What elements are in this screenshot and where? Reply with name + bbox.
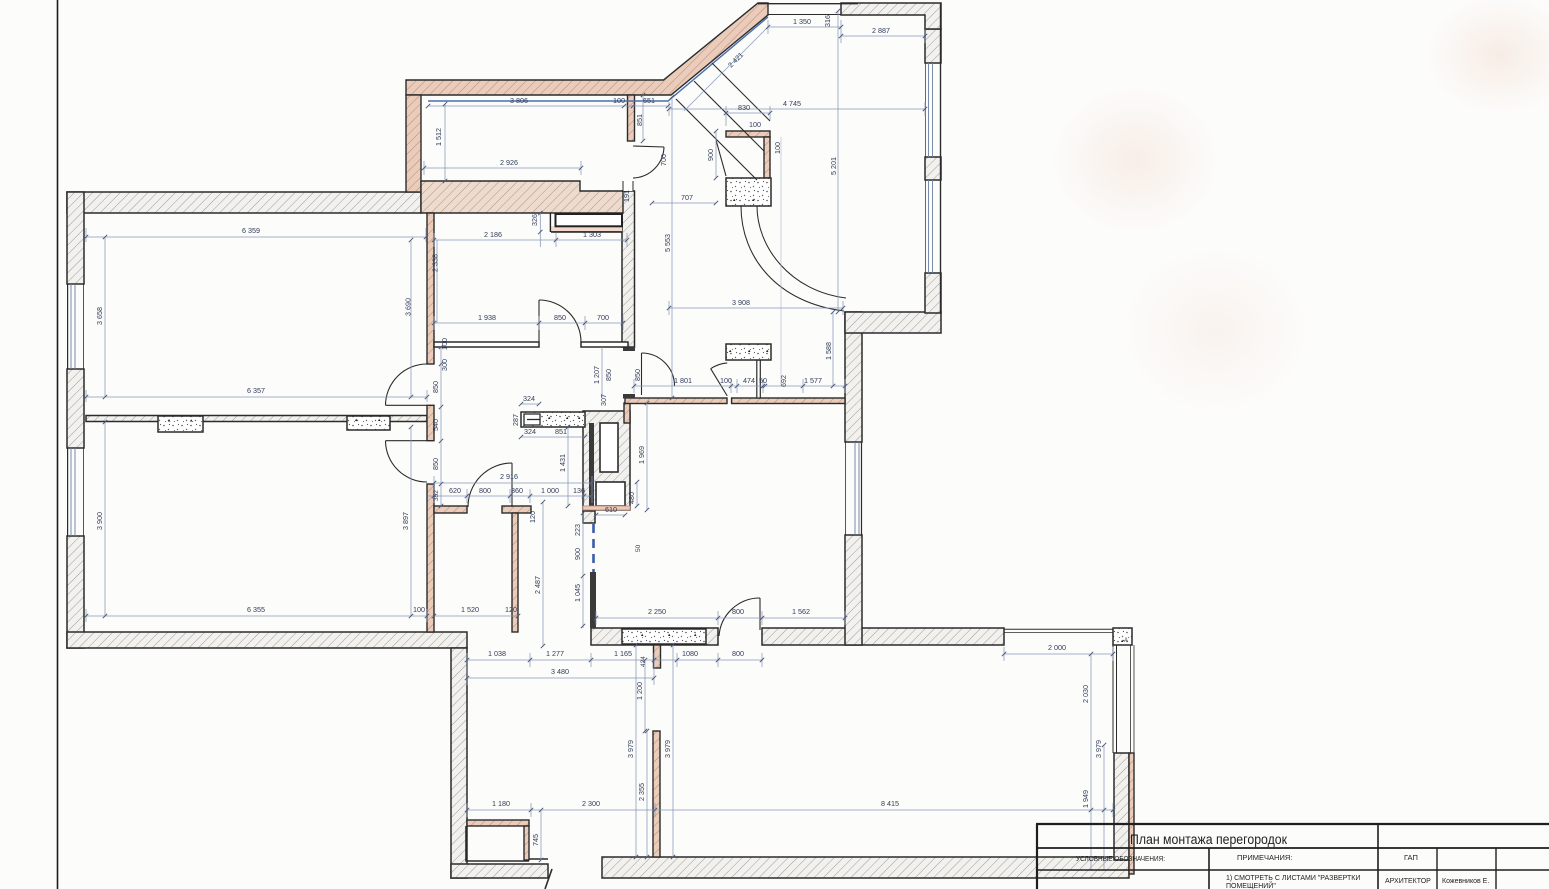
- svg-text:316: 316: [823, 15, 832, 27]
- svg-text:1 938: 1 938: [478, 313, 496, 322]
- svg-text:2 300: 2 300: [582, 799, 600, 808]
- svg-text:800: 800: [479, 486, 491, 495]
- svg-text:800: 800: [732, 607, 744, 616]
- svg-text:АРХИТЕКТОР: АРХИТЕКТОР: [1385, 878, 1431, 885]
- svg-text:850: 850: [604, 369, 613, 381]
- svg-text:УСЛОВНЫЕ ОБОЗНАЧЕНИЯ:: УСЛОВНЫЕ ОБОЗНАЧЕНИЯ:: [1076, 856, 1165, 863]
- svg-text:1 165: 1 165: [614, 649, 632, 658]
- svg-text:900: 900: [706, 149, 715, 161]
- svg-text:6 359: 6 359: [242, 226, 260, 235]
- svg-text:136: 136: [573, 486, 585, 495]
- svg-text:850: 850: [431, 381, 440, 393]
- svg-text:287: 287: [511, 414, 520, 426]
- svg-text:540: 540: [431, 419, 440, 431]
- svg-text:1 303: 1 303: [583, 230, 601, 239]
- svg-text:1 350: 1 350: [793, 17, 811, 26]
- svg-text:100: 100: [613, 96, 625, 105]
- svg-text:3 979: 3 979: [626, 740, 635, 758]
- svg-text:324: 324: [524, 427, 536, 436]
- svg-text:1 180: 1 180: [492, 799, 510, 808]
- svg-text:120: 120: [528, 511, 537, 523]
- svg-text:2 926: 2 926: [500, 158, 518, 167]
- svg-text:1 045: 1 045: [573, 584, 582, 602]
- svg-text:6 357: 6 357: [247, 386, 265, 395]
- svg-text:3 908: 3 908: [732, 298, 750, 307]
- svg-text:850: 850: [554, 313, 566, 322]
- svg-text:ПОМЕЩЕНИЙ": ПОМЕЩЕНИЙ": [1226, 881, 1276, 889]
- svg-text:830: 830: [738, 103, 750, 112]
- svg-text:3 806: 3 806: [510, 96, 528, 105]
- svg-text:100: 100: [413, 605, 425, 614]
- svg-text:4 745: 4 745: [783, 99, 801, 108]
- svg-text:План монтажа перегородок: План монтажа перегородок: [1130, 832, 1287, 847]
- svg-text:324: 324: [523, 394, 535, 403]
- svg-text:1 038: 1 038: [488, 649, 506, 658]
- svg-text:223: 223: [573, 524, 582, 536]
- svg-text:5 553: 5 553: [663, 234, 672, 252]
- svg-text:50: 50: [635, 544, 642, 552]
- svg-text:8 415: 8 415: [881, 799, 899, 808]
- svg-text:1080: 1080: [682, 649, 698, 658]
- svg-text:100: 100: [773, 142, 782, 154]
- svg-text:100: 100: [749, 120, 761, 129]
- svg-text:3 658: 3 658: [95, 307, 104, 325]
- svg-text:2 030: 2 030: [1081, 685, 1090, 703]
- svg-text:692: 692: [779, 375, 788, 387]
- svg-text:474: 474: [743, 376, 755, 385]
- svg-text:A: A: [1124, 638, 1128, 644]
- svg-text:100: 100: [440, 338, 449, 350]
- svg-text:1 577: 1 577: [804, 376, 822, 385]
- svg-text:1 000: 1 000: [541, 486, 559, 495]
- svg-text:2 186: 2 186: [484, 230, 502, 239]
- svg-text:1) СМОТРЕТЬ С ЛИСТАМИ "РАЗВЕРТ: 1) СМОТРЕТЬ С ЛИСТАМИ "РАЗВЕРТКИ: [1226, 875, 1360, 882]
- svg-text:480: 480: [627, 492, 636, 504]
- svg-text:3 979: 3 979: [663, 740, 672, 758]
- svg-text:ГАП: ГАП: [1404, 853, 1418, 862]
- svg-text:1 520: 1 520: [461, 605, 479, 614]
- svg-text:1 949: 1 949: [1081, 790, 1090, 808]
- svg-text:2 487: 2 487: [533, 576, 542, 594]
- svg-text:1 969: 1 969: [637, 446, 646, 464]
- svg-text:850: 850: [431, 458, 440, 470]
- svg-text:851: 851: [555, 427, 567, 436]
- svg-text:1 562: 1 562: [792, 607, 810, 616]
- svg-text:2 916: 2 916: [500, 472, 518, 481]
- svg-text:1 277: 1 277: [546, 649, 564, 658]
- svg-text:800: 800: [732, 649, 744, 658]
- svg-text:1 801: 1 801: [674, 376, 692, 385]
- svg-text:6 355: 6 355: [247, 605, 265, 614]
- svg-text:1 512: 1 512: [434, 128, 443, 146]
- svg-text:3 897: 3 897: [401, 512, 410, 530]
- svg-text:120: 120: [505, 605, 517, 614]
- svg-text:191: 191: [622, 190, 631, 202]
- svg-text:3 690: 3 690: [404, 298, 413, 316]
- svg-text:2 338: 2 338: [431, 254, 440, 272]
- svg-text:1 588: 1 588: [824, 342, 833, 360]
- svg-text:700: 700: [597, 313, 609, 322]
- svg-text:2 887: 2 887: [872, 26, 890, 35]
- svg-text:326: 326: [530, 214, 539, 226]
- svg-text:3 900: 3 900: [95, 512, 104, 530]
- svg-text:300: 300: [440, 359, 449, 371]
- svg-text:850: 850: [633, 369, 642, 381]
- svg-text:900: 900: [573, 548, 582, 560]
- svg-text:2 250: 2 250: [648, 607, 666, 616]
- svg-text:707: 707: [681, 193, 693, 202]
- svg-text:3 480: 3 480: [551, 667, 569, 676]
- svg-text:851: 851: [635, 114, 644, 126]
- svg-text:307: 307: [599, 394, 608, 406]
- svg-text:50: 50: [759, 376, 767, 385]
- svg-text:3 979: 3 979: [1094, 740, 1103, 758]
- svg-text:651: 651: [643, 96, 655, 105]
- svg-text:360: 360: [511, 486, 523, 495]
- svg-text:2 000: 2 000: [1048, 643, 1066, 652]
- svg-text:610: 610: [605, 505, 617, 514]
- svg-text:745: 745: [531, 834, 540, 846]
- svg-text:5 201: 5 201: [829, 157, 838, 175]
- svg-text:1 200: 1 200: [635, 682, 644, 700]
- svg-text:ПРИМЕЧАНИЯ:: ПРИМЕЧАНИЯ:: [1237, 853, 1292, 862]
- svg-text:1 431: 1 431: [558, 454, 567, 472]
- svg-text:2 355: 2 355: [637, 783, 646, 801]
- svg-text:1 207: 1 207: [592, 366, 601, 384]
- svg-text:700: 700: [659, 154, 668, 166]
- svg-text:Кожевников Е.: Кожевников Е.: [1442, 878, 1489, 885]
- svg-text:620: 620: [449, 486, 461, 495]
- svg-text:100: 100: [720, 376, 732, 385]
